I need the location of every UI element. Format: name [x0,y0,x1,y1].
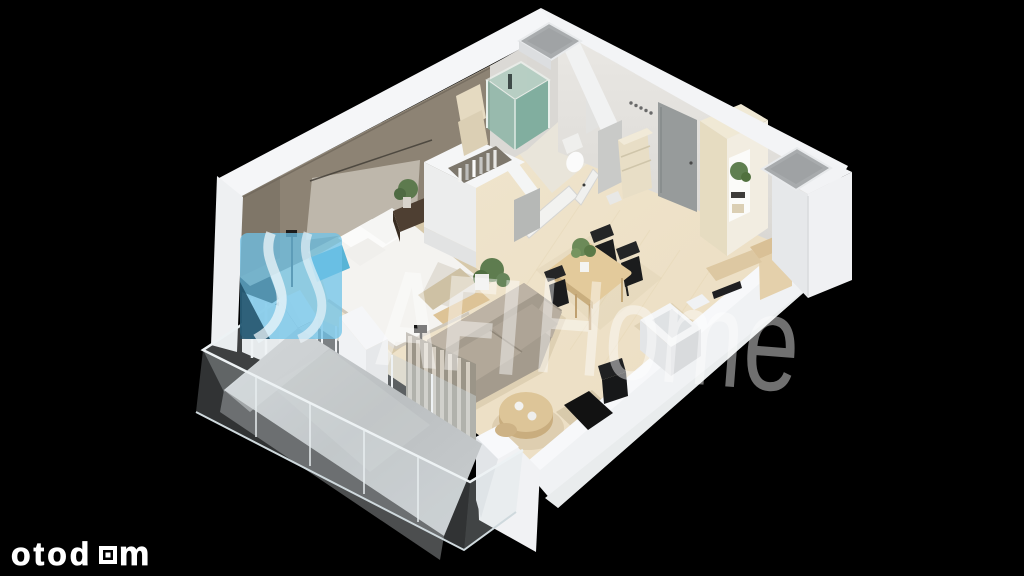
svg-text:m: m [119,535,149,573]
svg-text:Home: Home [528,248,806,422]
svg-text:AFI: AFI [371,240,528,404]
svg-text:otod: otod [11,536,92,572]
